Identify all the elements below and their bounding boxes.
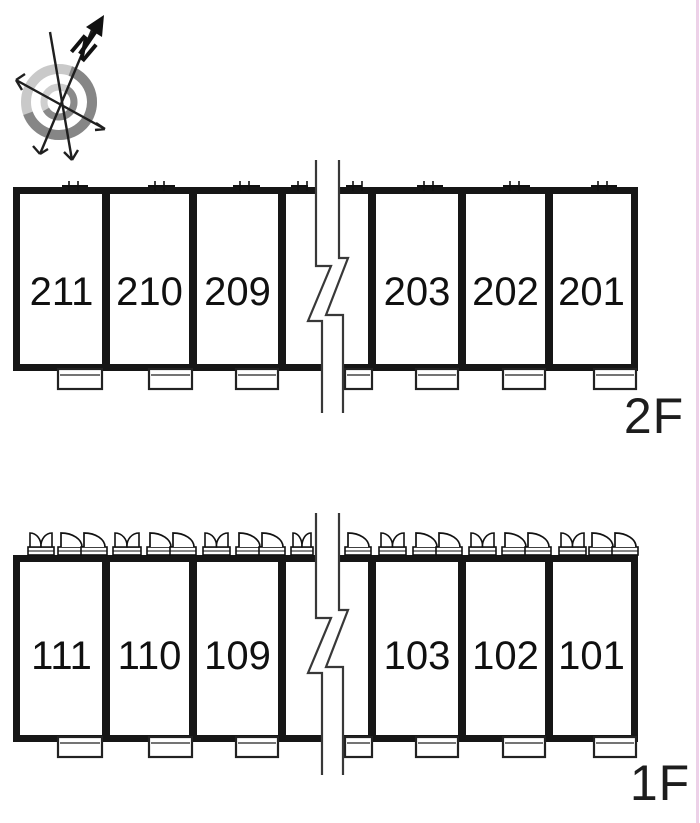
room-number-label: 109 [197, 634, 278, 678]
door-swing-icon [147, 533, 173, 555]
room-number-label: 211 [21, 270, 102, 314]
floorplan-canvas: N 211210209203202201111110109103102101 2… [0, 0, 700, 823]
wall-divider [189, 194, 197, 364]
room-number-label: 103 [376, 634, 458, 678]
double-door-icon [469, 533, 496, 555]
door-swing-icon [236, 533, 262, 555]
wall-divider [278, 194, 286, 364]
double-door-icon [291, 533, 313, 555]
porch-step [236, 369, 278, 389]
scan-edge-artifact [696, 0, 699, 823]
wall-divider [102, 562, 110, 735]
porch-step [594, 369, 636, 389]
floor-label-2f: 2F [612, 390, 696, 442]
wall-divider [458, 194, 466, 364]
room-number-label: 209 [197, 270, 278, 314]
porch-step [58, 369, 102, 389]
room-number-label: 111 [21, 634, 102, 678]
door-swing-icon [436, 533, 462, 555]
wall-divider [102, 194, 110, 364]
wall-divider [368, 194, 376, 364]
door-swing-icon [589, 533, 615, 555]
door-swing-icon [170, 533, 196, 555]
door-swing-icon [413, 533, 439, 555]
porch-step [416, 369, 458, 389]
double-door-icon [203, 533, 230, 555]
porch-step [503, 369, 545, 389]
wall-divider [545, 562, 553, 735]
double-door-icon [559, 533, 586, 555]
double-door-icon [379, 533, 406, 555]
room-number-label: 101 [553, 634, 630, 678]
door-swing-icon [612, 533, 638, 555]
door-swing-icon [525, 533, 551, 555]
porch-step [149, 369, 192, 389]
door-swing-icon [259, 533, 285, 555]
room-number-label: 202 [466, 270, 545, 314]
door-swing-icon [502, 533, 528, 555]
room-number-label: 201 [553, 270, 630, 314]
wall-divider [458, 562, 466, 735]
double-door-icon [28, 533, 54, 555]
floor-label-1f: 1F [618, 757, 700, 809]
door-swing-icon [58, 533, 84, 555]
wall-divider [368, 562, 376, 735]
door-swing-icon [81, 533, 107, 555]
double-door-icon [113, 533, 141, 555]
porch-step [345, 369, 372, 389]
compass-icon: N [2, 2, 120, 164]
room-number-label: 203 [376, 270, 458, 314]
room-number-label: 210 [110, 270, 189, 314]
wall-divider [189, 562, 197, 735]
room-number-label: 110 [110, 634, 189, 678]
door-swing-icon [345, 533, 371, 555]
wall-divider [545, 194, 553, 364]
wall-divider [278, 562, 286, 735]
room-number-label: 102 [466, 634, 545, 678]
